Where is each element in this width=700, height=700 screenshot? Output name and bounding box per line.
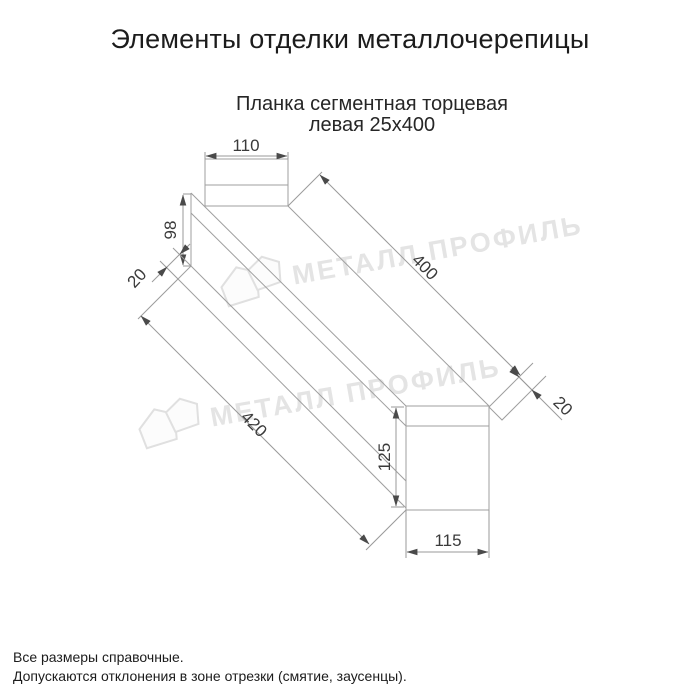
- watermark-text: МЕТАЛЛ ПРОФИЛЬ: [290, 210, 585, 291]
- dim-label-98: 98: [161, 221, 180, 240]
- metall-profil-logo-icon: [217, 254, 285, 307]
- dim-label-115: 115: [434, 531, 461, 550]
- watermark-band-1: МЕТАЛЛ ПРОФИЛЬ: [217, 201, 585, 307]
- dimension-110: 110: [205, 136, 288, 159]
- dimension-98: 98: [161, 194, 191, 266]
- watermark-band-2: МЕТАЛЛ ПРОФИЛЬ: [135, 343, 503, 449]
- metall-profil-logo-icon: [135, 396, 203, 449]
- dim-label-20-right: 20: [549, 393, 576, 420]
- dimension-20-left: 20: [124, 244, 191, 292]
- footer-note-2: Допускаются отклонения в зоне отрезки (с…: [13, 667, 653, 686]
- dim-label-125: 125: [375, 443, 394, 471]
- page: { "page": { "title": "Элементы отделки м…: [0, 0, 700, 700]
- footer-notes: Все размеры справочные. Допускаются откл…: [13, 648, 653, 686]
- dim-label-110: 110: [232, 136, 259, 155]
- dim-label-20-left: 20: [124, 265, 151, 292]
- right-end-profile: [406, 406, 489, 510]
- dimension-115: 115: [406, 510, 489, 558]
- technical-drawing-canvas: МЕТАЛЛ ПРОФИЛЬ МЕТАЛЛ ПРОФИЛЬ 110: [0, 0, 700, 700]
- footer-note-1: Все размеры справочные.: [13, 648, 653, 667]
- left-end-profile: [205, 159, 288, 206]
- dimension-20-right: 20: [511, 369, 576, 420]
